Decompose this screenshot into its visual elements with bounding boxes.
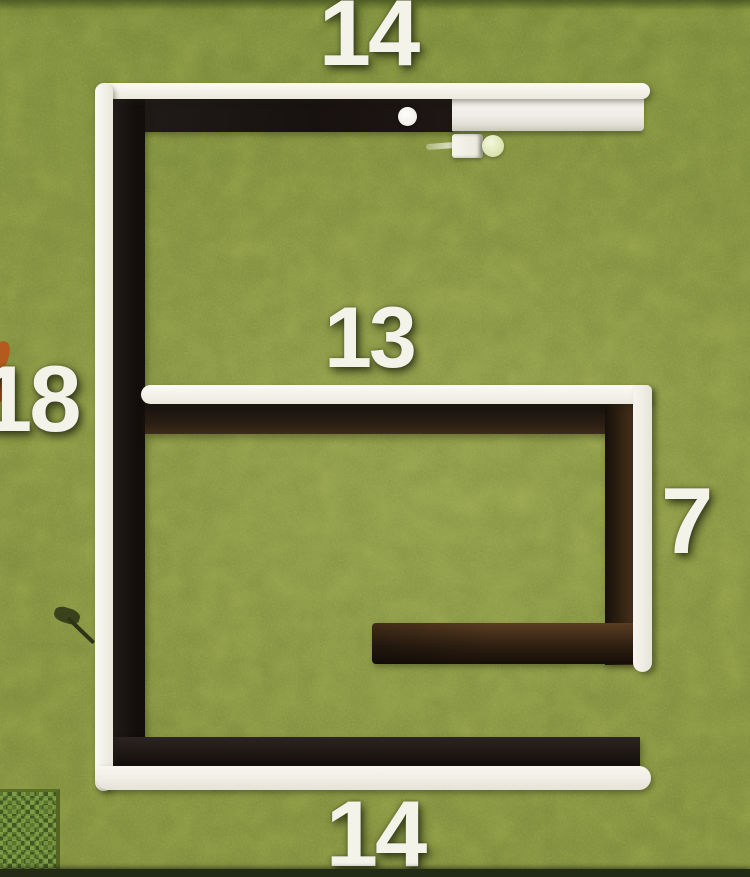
top-wall-white-section — [452, 97, 644, 131]
measurement-right-height: 7 — [661, 474, 713, 568]
stick-line — [67, 617, 96, 645]
inner-right-wall-outline — [633, 385, 652, 672]
inner-bottom-wall — [372, 623, 634, 664]
middle-wall — [145, 403, 634, 434]
measurement-left-height: 18 — [0, 352, 79, 446]
white-item-icon — [398, 107, 417, 126]
letterbox-band — [0, 869, 750, 877]
middle-wall-outline — [141, 385, 651, 404]
leaf-bush — [0, 789, 60, 877]
left-wall-outline — [95, 83, 113, 791]
measurement-inner-width: 13 — [319, 295, 419, 381]
top-wall-outline — [97, 83, 650, 99]
player-head — [482, 135, 504, 157]
measurement-bottom-width: 14 — [325, 787, 425, 877]
bottom-wall — [113, 737, 640, 768]
player-character — [424, 131, 510, 163]
player-body — [452, 134, 483, 158]
measurement-top-width: 14 — [318, 0, 418, 80]
game-world-view[interactable]: 14 13 18 7 14 — [0, 0, 750, 877]
left-wall — [112, 97, 145, 760]
